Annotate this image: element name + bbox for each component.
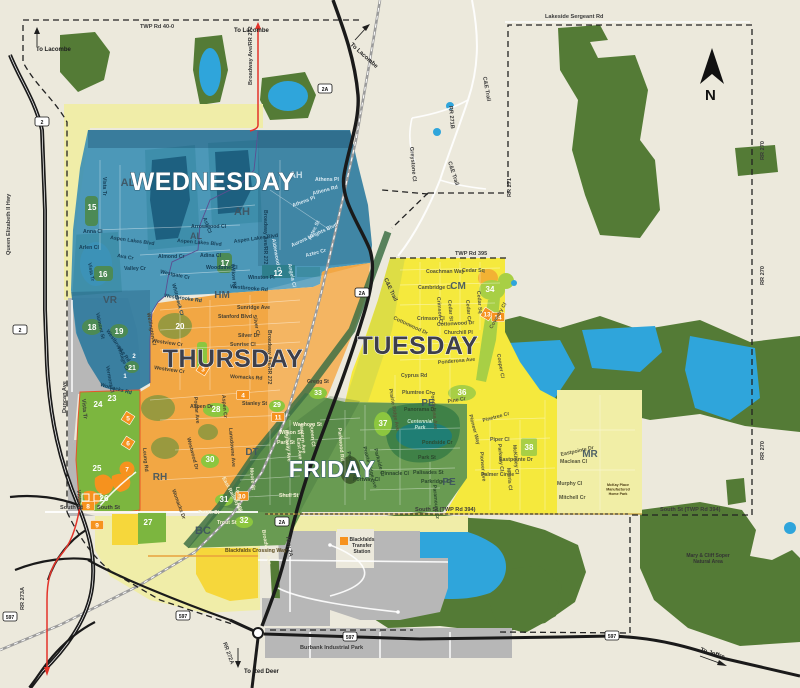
street-label: South St <box>198 510 220 516</box>
area-code-pe: PE <box>442 477 456 488</box>
park-number-37: 37 <box>379 419 388 428</box>
road-label: Duncan Ave <box>62 381 68 413</box>
street-label: Park St <box>418 455 436 461</box>
area-code-rh: RH <box>153 472 167 483</box>
bright-yellow-block <box>112 514 138 545</box>
svg-text:7: 7 <box>125 466 129 473</box>
area-code-al: AL <box>190 231 202 241</box>
blackfalds-collection-zone-map: N 356789410111314222A2A2A597597597597 Vi… <box>0 0 800 688</box>
road-label: RR 270 <box>760 266 766 285</box>
svg-text:597: 597 <box>346 635 355 641</box>
park-number-28: 28 <box>212 405 221 414</box>
zone-title-thursday: THURSDAY <box>163 345 304 373</box>
park-number-26: 26 <box>100 494 109 503</box>
direction-label: To Lacombe <box>234 28 270 34</box>
road-label: RR 271 <box>507 178 513 197</box>
street-label: Pondside Cr <box>422 440 453 446</box>
area-code-dt: DT <box>245 447 258 458</box>
gray-industrial-lower <box>265 628 512 658</box>
street-label: Blackfalds Crossing Way <box>225 548 287 554</box>
place-label: McKay PlaceManufacturedHome Park <box>606 483 630 496</box>
road-label: Lakeside Sergeant Rd <box>545 14 604 20</box>
park-number-15: 15 <box>88 203 97 212</box>
street-label: Shull St <box>279 493 299 499</box>
area-code-hm: HM <box>214 290 230 301</box>
park-number-36: 36 <box>458 388 467 397</box>
park-number-25: 25 <box>93 464 102 473</box>
park-number-33: 33 <box>314 390 322 397</box>
street-label: Piper Cl <box>490 437 510 443</box>
marker-11: 11 <box>272 413 285 422</box>
park-number-32: 32 <box>240 516 249 525</box>
area-code-cm: CM <box>450 281 466 292</box>
svg-text:2: 2 <box>19 328 22 334</box>
street-label: Arlen Cl <box>79 245 99 251</box>
street-label: Palmer Circle <box>481 472 514 478</box>
road-label: TWP Rd 40-0 <box>140 24 174 30</box>
park-number-24: 24 <box>94 400 103 409</box>
highway-shield-597: 597 <box>605 631 619 640</box>
street-label: Sunridge Ave <box>237 305 270 311</box>
road-label: Queen Elizabeth II Hwy <box>6 193 12 255</box>
street-label: Waghorn St <box>293 422 322 428</box>
park-number-34: 34 <box>486 285 495 294</box>
svg-text:2A: 2A <box>322 87 329 93</box>
road-label: RR 270 <box>760 141 766 160</box>
street-label: Almond Cr <box>158 254 185 260</box>
area-code-ah: AH <box>234 206 250 218</box>
street-label: Trout St <box>217 520 237 526</box>
north-letter: N <box>705 87 716 104</box>
street-label: Plumtree Cr <box>402 390 431 396</box>
park-number-18: 18 <box>88 323 97 332</box>
street-label: Adina Cl <box>200 253 222 259</box>
road-label: Burbank Industrial Park <box>300 645 364 651</box>
park-number-30: 30 <box>206 455 215 464</box>
direction-label: To Lacombe <box>36 47 72 53</box>
area-code-pe: PE <box>421 398 435 409</box>
street-label: Stanford Blvd <box>218 314 252 320</box>
zone-title-friday: FRIDAY <box>289 456 376 482</box>
svg-text:4: 4 <box>241 392 245 399</box>
street-label: Vista Tr <box>101 177 107 196</box>
svg-text:5: 5 <box>126 415 130 422</box>
street-label: Palisades St <box>413 470 444 476</box>
roundabout <box>253 628 263 638</box>
svg-text:2A: 2A <box>279 520 286 526</box>
street-label: Cedar Sq <box>462 268 485 274</box>
highway-shield-597: 597 <box>176 611 190 620</box>
svg-text:9: 9 <box>95 522 99 529</box>
street-label: Valley Cr <box>124 266 146 272</box>
highway-shield-2: 2 <box>35 117 49 126</box>
svg-text:597: 597 <box>179 614 188 620</box>
street-label: Cyprus Rd <box>401 373 427 379</box>
park-number-31: 31 <box>220 495 229 504</box>
road-label: Broadway Ave/RR 272 <box>248 26 254 85</box>
park-number-12: 12 <box>274 269 283 278</box>
street-label: Gregg St <box>307 379 329 385</box>
marker-4: 4 <box>237 391 250 400</box>
highway-shield-597: 597 <box>343 632 357 641</box>
svg-text:597: 597 <box>6 615 15 621</box>
svg-text:2A: 2A <box>359 291 366 297</box>
park-number-19: 19 <box>115 327 124 336</box>
park-number-17: 17 <box>221 259 230 268</box>
svg-text:597: 597 <box>608 634 617 640</box>
road-label: RR 273A <box>20 587 26 610</box>
svg-text:8: 8 <box>86 503 90 510</box>
marker-7: 7 <box>120 462 135 477</box>
street-label: Murphy Cl <box>557 481 583 487</box>
street-label: Cambridge Cl <box>418 285 452 291</box>
highway-shield-2: 2 <box>13 325 27 334</box>
park-number-27: 27 <box>144 518 153 527</box>
marker-9: 9 <box>91 521 104 530</box>
svg-text:11: 11 <box>275 414 282 421</box>
park-number-23: 23 <box>108 394 117 403</box>
area-code-mr: MR <box>582 449 598 460</box>
svg-text:6: 6 <box>126 440 130 447</box>
pale-strip-south <box>290 516 468 532</box>
zone-title-tuesday: TUESDAY <box>358 332 479 360</box>
park-number-21: 21 <box>128 365 136 372</box>
street-label: Mitchell Cr <box>559 495 586 501</box>
road-label: South St <box>97 505 120 511</box>
svg-text:13: 13 <box>483 311 491 318</box>
street-label: Athens Pl <box>315 177 339 183</box>
street-label: Coachman Way <box>426 269 465 275</box>
highway-shield-2A: 2A <box>318 84 332 93</box>
road-label: RR 270 <box>760 441 766 460</box>
area-code-vr: VR <box>103 295 118 306</box>
street-label: Winston Pl <box>248 275 275 281</box>
highway-shield-597: 597 <box>3 612 17 621</box>
street-label: Stanley St <box>242 401 267 407</box>
direction-label: To Red Deer <box>244 669 280 675</box>
area-code-bc: BC <box>195 525 211 537</box>
svg-text:2: 2 <box>41 120 44 126</box>
park-number-29: 29 <box>273 402 281 409</box>
park-number-20: 20 <box>176 322 185 331</box>
transfer-station-icon <box>340 537 348 545</box>
park-number-38: 38 <box>525 443 534 452</box>
highway-shield-2A: 2A <box>275 517 289 526</box>
highway-shield-2A: 2A <box>355 288 369 297</box>
road-label: TWP Rd 395 <box>455 251 487 257</box>
zone-title-wednesday: WEDNESDAY <box>131 168 296 196</box>
street-label: Anna Cl <box>83 229 103 235</box>
park-number-16: 16 <box>99 270 108 279</box>
road-label: South St (TWP Rd 394) <box>660 507 721 513</box>
street-label: Broadway Ave/RR 272 <box>262 210 268 265</box>
road-label: South St (TWP Rd 394) <box>415 507 476 513</box>
